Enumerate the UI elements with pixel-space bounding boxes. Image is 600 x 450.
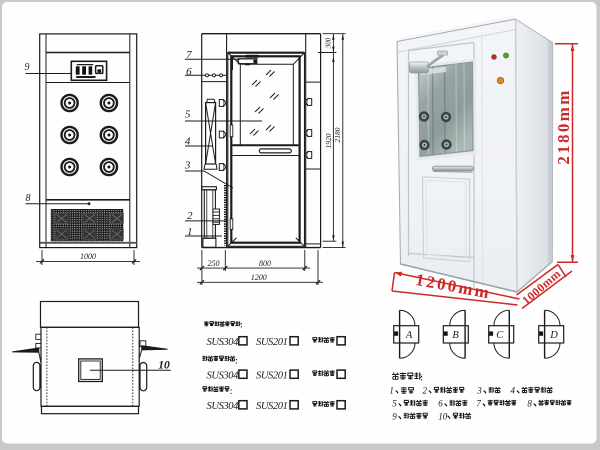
- svg-text:2: 2: [187, 210, 193, 222]
- svg-text:8: 8: [26, 193, 31, 204]
- svg-text:SUS304: SUS304: [207, 370, 240, 381]
- svg-text:SUS304: SUS304: [207, 337, 240, 348]
- svg-text:1920: 1920: [324, 133, 333, 148]
- svg-text:2: 2: [423, 386, 428, 396]
- svg-text:7: 7: [476, 399, 481, 409]
- svg-text:1200: 1200: [251, 273, 267, 282]
- svg-text:1000: 1000: [80, 252, 96, 261]
- svg-text:250: 250: [208, 259, 220, 268]
- svg-text::: :: [420, 372, 423, 382]
- svg-text:6: 6: [438, 399, 443, 409]
- svg-text:SUS201: SUS201: [256, 401, 288, 412]
- svg-text:9: 9: [392, 411, 397, 421]
- svg-text:10: 10: [438, 411, 448, 421]
- svg-text:3: 3: [476, 386, 482, 396]
- svg-text:A: A: [405, 330, 413, 341]
- svg-text:B: B: [452, 330, 459, 341]
- svg-text::: :: [230, 387, 233, 396]
- svg-text:SUS201: SUS201: [256, 337, 288, 348]
- svg-text:8: 8: [527, 399, 532, 409]
- svg-text::: :: [240, 321, 243, 330]
- svg-text:4: 4: [511, 386, 516, 396]
- svg-text:2180: 2180: [333, 127, 342, 142]
- svg-text:10: 10: [158, 359, 170, 371]
- svg-text:1: 1: [389, 386, 394, 396]
- svg-text:300: 300: [325, 37, 333, 49]
- svg-text:800: 800: [259, 259, 271, 268]
- svg-text::: :: [235, 357, 238, 366]
- svg-text:9: 9: [25, 62, 30, 73]
- svg-text:SUS201: SUS201: [256, 370, 288, 381]
- svg-text:D: D: [549, 330, 558, 341]
- svg-text:2180mm: 2180mm: [554, 88, 573, 164]
- svg-text:6: 6: [186, 66, 192, 78]
- svg-text:5: 5: [392, 399, 397, 409]
- svg-text:SUS304: SUS304: [207, 401, 240, 412]
- svg-text:C: C: [496, 330, 504, 341]
- svg-text:3: 3: [184, 160, 191, 172]
- svg-text:5: 5: [185, 109, 191, 121]
